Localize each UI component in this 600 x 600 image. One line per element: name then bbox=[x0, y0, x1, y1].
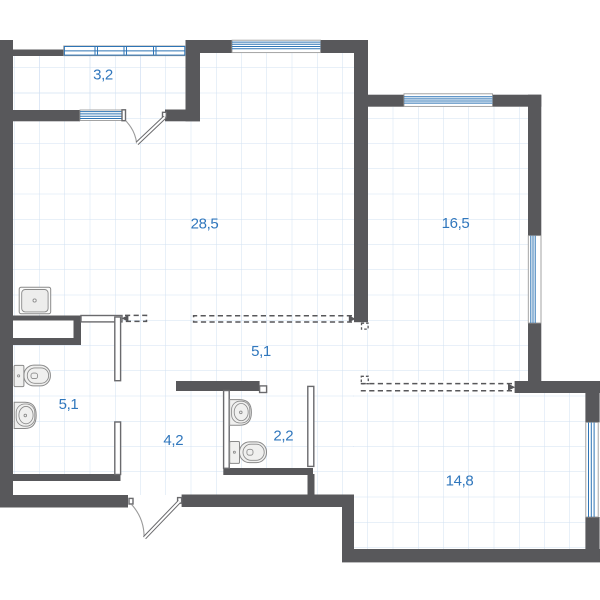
svg-text:3,2: 3,2 bbox=[93, 67, 113, 84]
svg-text:16,5: 16,5 bbox=[442, 215, 470, 232]
svg-text:14,8: 14,8 bbox=[446, 473, 474, 490]
svg-text:4,2: 4,2 bbox=[163, 432, 183, 449]
svg-text:2,2: 2,2 bbox=[273, 428, 293, 445]
svg-text:5,1: 5,1 bbox=[251, 343, 271, 360]
svg-text:5,1: 5,1 bbox=[59, 396, 79, 413]
svg-text:28,5: 28,5 bbox=[191, 216, 219, 233]
